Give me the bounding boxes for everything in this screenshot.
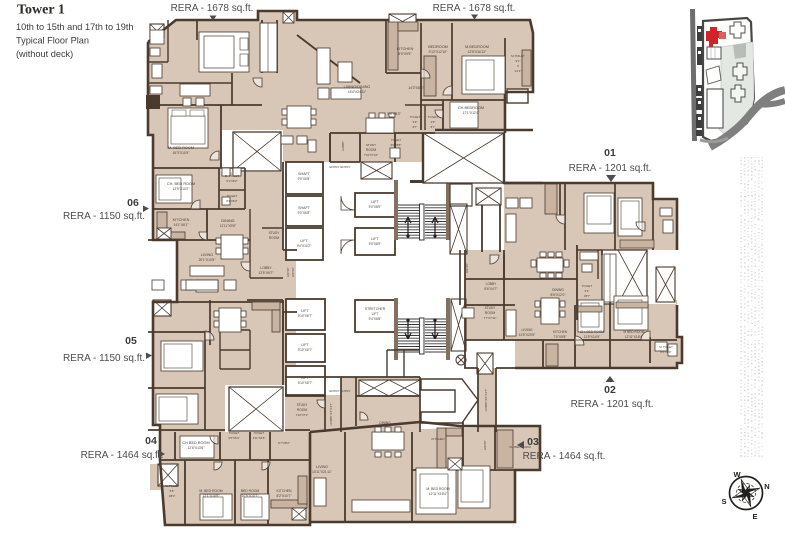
svg-text:o +/- 3% in actual carpet area: o +/- 3% in actual carpet areas may occu… [760,157,764,457]
svg-text:4'11"X6'6": 4'11"X6'6" [253,436,266,440]
svg-text:12'1"X10'9": 12'1"X10'9" [203,494,221,498]
svg-text:(without deck): (without deck) [16,49,73,59]
svg-text:ENTRY ENTRY: ENTRY ENTRY [329,389,350,393]
svg-text:M. BED ROOM: M. BED ROOM [426,487,449,491]
svg-text:TOILET: TOILET [229,431,240,435]
svg-text:RERA - 1464 sq.ft.: RERA - 1464 sq.ft. [81,450,164,461]
svg-text:ROOM: ROOM [366,148,377,152]
svg-text:STUDY: STUDY [269,231,281,235]
svg-text:02: 02 [604,384,616,396]
svg-text:7'0"X9'8": 7'0"X9'8" [553,335,567,339]
svg-text:DINING: DINING [552,288,564,292]
svg-text:Tower 1: Tower 1 [17,3,65,18]
svg-text:9'12"X12'10": 9'12"X12'10" [429,50,448,54]
svg-text:RERA - 1201 sq.ft.: RERA - 1201 sq.ft. [571,399,654,410]
svg-text:KITCHEN: KITCHEN [277,489,292,493]
svg-text:LOBBY: LOBBY [341,141,345,151]
svg-text:ENTRY: ENTRY [291,267,295,277]
svg-text:9'4"X8'8": 9'4"X8'8" [369,317,382,321]
svg-text:M. TOILET: M. TOILET [225,174,240,178]
svg-text:M BED ROOM: M BED ROOM [624,330,645,334]
svg-text:8'7": 8'7" [431,125,436,129]
svg-text:7'10"X7'2": 7'10"X7'2" [296,413,309,417]
svg-text:9'1": 9'1" [516,59,521,63]
svg-text:8'5"X9'9": 8'5"X9'9" [398,52,412,56]
svg-text:12'9"X10'2": 12'9"X10'2" [173,187,191,191]
svg-text:DINING: DINING [221,219,234,223]
svg-text:N: N [764,482,769,491]
svg-text:17'1"X12'4": 17'1"X12'4" [463,111,481,115]
svg-text:8'1"X5'2": 8'1"X5'2" [226,199,237,203]
svg-text:11'11"X9'8": 11'11"X9'8" [220,224,237,228]
svg-text:BED ROOM: BED ROOM [241,489,260,493]
svg-text:RERA - 1150 sq.ft.: RERA - 1150 sq.ft. [63,353,145,364]
svg-text:KITCHEN: KITCHEN [431,437,444,441]
svg-text:04: 04 [145,435,157,447]
svg-text:6'5"X8'9": 6'5"X8'9" [660,350,671,354]
svg-text:5'3": 5'3" [585,289,590,293]
svg-text:11'5"X14'5": 11'5"X14'5" [584,335,601,339]
svg-text:LIFT: LIFT [372,312,379,316]
svg-text:M. BED ROOM: M. BED ROOM [199,489,222,493]
svg-text:9'10"X8'7": 9'10"X8'7" [298,314,312,318]
svg-text:18'0"X24'11": 18'0"X24'11" [348,90,367,94]
svg-text:9'10"X8'7": 9'10"X8'7" [298,381,312,385]
svg-text:12'5"X16'12": 12'5"X16'12" [468,50,487,54]
svg-text:TOILET: TOILET [410,115,421,119]
svg-text:8'7": 8'7" [413,125,418,129]
svg-text:RERA - 1201 sq.ft.: RERA - 1201 sq.ft. [569,163,652,174]
svg-text:5'9"X8'3": 5'9"X8'3" [387,112,401,116]
svg-text:12'11"X16'4": 12'11"X16'4" [429,492,448,496]
svg-text:KITCHEN: KITCHEN [173,218,190,222]
svg-text:9'6"X5'4": 9'6"X5'4" [228,436,239,440]
svg-text:LIVING: LIVING [521,328,532,332]
svg-text:TOILET: TOILET [227,194,238,198]
svg-text:9'0"X8'9": 9'0"X8'9" [369,242,382,246]
svg-text:6'1"X8'2": 6'1"X8'2" [226,179,237,183]
svg-text:TOILET: TOILET [254,431,265,435]
svg-text:LOBBY: LOBBY [260,266,272,270]
svg-text:X8'7": X8'7" [584,294,591,298]
svg-text:SHAFT: SHAFT [298,172,311,176]
svg-text:W: W [733,470,741,479]
svg-text:8'2"X10'7": 8'2"X10'7" [277,494,293,498]
svg-text:RERA - 1464 sq.ft.: RERA - 1464 sq.ft. [523,451,606,462]
svg-text:03: 03 [527,436,539,448]
svg-text:M. TOILET: M. TOILET [165,484,179,488]
svg-text:LIVING: LIVING [201,253,213,257]
svg-text:M. TOILET: M. TOILET [659,345,673,349]
svg-text:LOBBY: LOBBY [486,282,498,286]
svg-text:5'5": 5'5" [170,489,175,493]
svg-text:7'10"X7'10": 7'10"X7'10" [364,153,378,157]
svg-text:Typical Floor Plan: Typical Floor Plan [16,36,89,46]
svg-text:M.BEDROOM: M.BEDROOM [465,45,489,49]
svg-text:S: S [721,497,726,506]
svg-text:12'5"X6'7": 12'5"X6'7" [259,271,275,275]
svg-text:LIFT: LIFT [300,239,308,243]
svg-text:LIFT: LIFT [371,237,379,241]
svg-text:ROOM: ROOM [269,236,280,240]
svg-text:TOILET: TOILET [391,138,401,142]
svg-text:RERA - 1150 sq.ft.: RERA - 1150 sq.ft. [63,211,145,222]
svg-text:E: E [752,512,757,521]
svg-text:ENTRY: ENTRY [483,440,487,450]
svg-text:9'0"X8'9": 9'0"X8'9" [369,205,382,209]
svg-text:5'9": 5'9" [413,120,418,124]
svg-text:05: 05 [125,335,137,347]
svg-text:KITCHEN: KITCHEN [553,330,568,334]
svg-text:LOBBY 9'6"X4'7": LOBBY 9'6"X4'7" [484,389,488,412]
svg-text:CH. BED ROOM: CH. BED ROOM [580,330,604,334]
svg-text:11'5"X23'5": 11'5"X23'5" [519,333,536,337]
svg-text:9'0"X6'8": 9'0"X6'8" [298,211,311,215]
svg-text:9'10"X8'7": 9'10"X8'7" [298,348,312,352]
svg-text:ENTRY: ENTRY [286,267,290,277]
svg-text:14'1"X8'1": 14'1"X8'1" [174,223,190,227]
svg-text:20'1"X10'5": 20'1"X10'5" [199,258,217,262]
svg-text:M.TOILET: M.TOILET [511,54,525,58]
svg-text:ENTRY ENTRY: ENTRY ENTRY [329,165,350,169]
svg-text:14'3"X8'6": 14'3"X8'6" [408,86,424,90]
svg-text:9'4"X10'2": 9'4"X10'2" [297,244,311,248]
svg-text:10'9"X10'7": 10'9"X10'7" [242,494,260,498]
svg-text:M. BED ROOM: M. BED ROOM [168,146,194,150]
svg-text:ROOM: ROOM [297,408,308,412]
svg-text:STUDY: STUDY [366,143,376,147]
svg-text:SHAFT: SHAFT [298,206,311,210]
svg-text:RERA - 1678 sq.ft.: RERA - 1678 sq.ft. [433,3,516,14]
svg-text:06: 06 [127,197,139,209]
svg-text:RERA - 1678 sq.ft.: RERA - 1678 sq.ft. [171,3,254,14]
svg-text:X8'0": X8'0" [169,494,176,498]
svg-text:14'1": 14'1" [515,69,522,73]
svg-text:TOILET: TOILET [582,284,593,288]
svg-text:9'0"X6'8": 9'0"X6'8" [298,177,311,181]
svg-text:CH. BED ROOM: CH. BED ROOM [167,182,195,186]
svg-text:DINING: DINING [379,421,391,425]
svg-text:X: X [517,64,519,68]
svg-text:01: 01 [604,147,616,159]
svg-text:CH BED ROOM: CH BED ROOM [182,441,209,445]
svg-text:ments are indicative and are s: ments are indicative and are subject to … [753,157,757,457]
svg-text:5'0"X8'8": 5'0"X8'8" [391,143,402,147]
svg-text:ROOM: ROOM [485,311,496,315]
svg-text:LIFT: LIFT [301,343,309,347]
svg-text:8'6"X12'0": 8'6"X12'0" [551,293,567,297]
svg-text:LIFT: LIFT [371,200,379,204]
svg-text:LIFT: LIFT [301,309,309,313]
svg-text:16'3"X10'5": 16'3"X10'5" [173,151,191,155]
svg-text:8'6"X4'7": 8'6"X4'7" [484,287,498,291]
svg-text:STUDY: STUDY [485,306,497,310]
svg-text:12'6"X13'6": 12'6"X13'6" [188,446,206,450]
svg-text:KITCHEN: KITCHEN [397,47,414,51]
svg-text:BEDROOM: BEDROOM [428,45,448,49]
svg-text:10th to 15th and 17th to 19th: 10th to 15th and 17th to 19th [16,22,134,32]
svg-text:LIVING/DINING: LIVING/DINING [344,85,371,89]
svg-text:7'7"X7'10": 7'7"X7'10" [484,316,497,320]
svg-text:STRETCHER: STRETCHER [365,307,386,311]
svg-text:LIVING: LIVING [316,465,328,469]
svg-text:LOBBY 9'6"X4'7": LOBBY 9'6"X4'7" [329,403,333,426]
svg-text:10'11"X21'11": 10'11"X21'11" [312,470,333,474]
svg-text:4'5": 4'5" [431,120,436,124]
svg-text:6'7"X8'2": 6'7"X8'2" [278,441,290,445]
svg-text:STUDY: STUDY [297,403,309,407]
svg-text:ENTRY: ENTRY [465,263,469,273]
svg-text:CH BEDROOM: CH BEDROOM [458,106,484,110]
